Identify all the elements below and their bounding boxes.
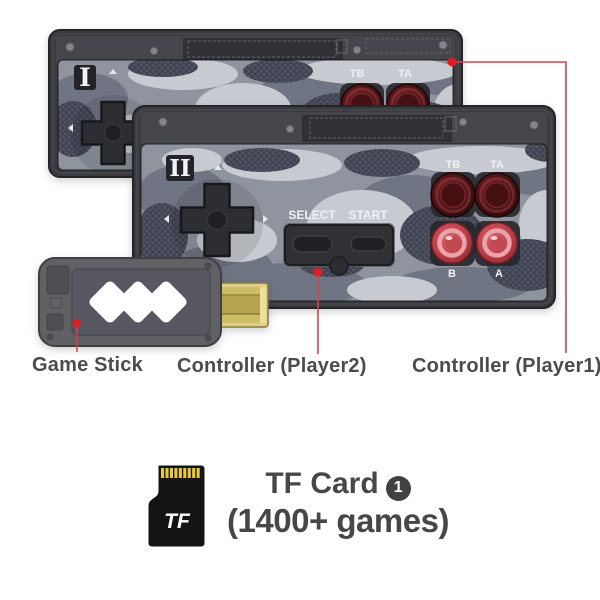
controller2-marker-text: II [169,155,191,182]
hdmi-connector-icon [216,283,268,327]
controller2-tb-label: TB [446,159,461,171]
controller2-start-button [351,237,386,251]
controller1-ta-label: TA [398,68,412,80]
controller-player1-label: Controller (Player1) [412,355,600,378]
controller2-button-b [432,223,473,264]
controller2-button-a [477,223,518,264]
controller2-ta-label: TA [490,159,504,171]
controller2-select-label: SELECT [288,208,336,222]
controller1-marker-badge: I [74,63,96,92]
controller2-top-band [141,112,547,144]
controller1-marker-text: I [79,63,91,92]
controller1-tb-label: TB [350,68,365,80]
tf-card-subtitle: (1400+ games) [200,504,476,537]
game-stick-graphic [38,256,270,348]
controller2-button-ta [475,173,519,217]
controller-player2-label: Controller (Player2) [177,355,367,378]
controller2-a-label: A [495,268,503,280]
game-stick-label: Game Stick [32,354,143,377]
tf-card-text: TF Card1 (1400+ games) [200,468,476,537]
controller2-button-tb [431,173,475,217]
game-stick [38,256,270,348]
tf-card-title-line: TF Card1 [200,468,476,501]
controller2-start-label: START [348,208,388,222]
controller1-top-band [56,36,455,62]
tf-card-title: TF Card [265,467,378,500]
number-one-badge-icon: 1 [386,476,411,501]
controller2-b-label: B [448,268,456,280]
controller2-select-button [293,236,332,252]
tf-card-icon-label: TF [164,510,191,533]
tf-card-icon: TF [148,465,205,547]
tf-card-pins [161,468,200,478]
controller2-marker-badge: II [166,155,194,182]
product-diagram: I TB TA [0,0,600,600]
